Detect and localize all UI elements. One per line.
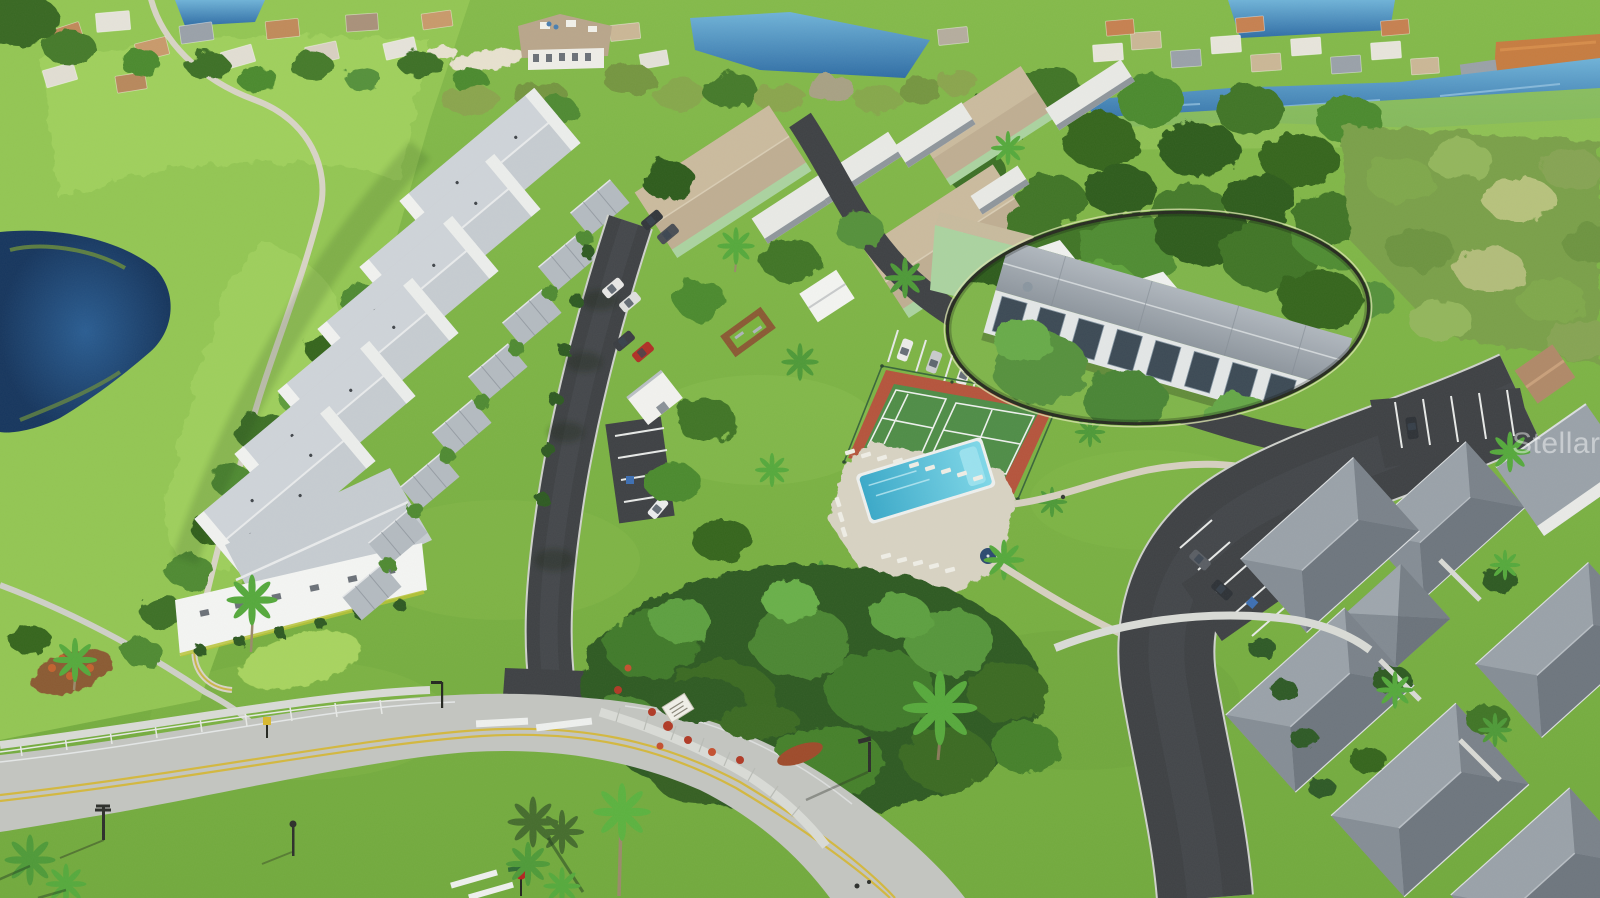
aerial-photo-canvas: StellarMLS [0, 0, 1600, 898]
aerial-photo: StellarMLS [0, 0, 1600, 898]
photo-grain [0, 0, 1600, 898]
watermark: StellarMLS [1512, 427, 1600, 460]
